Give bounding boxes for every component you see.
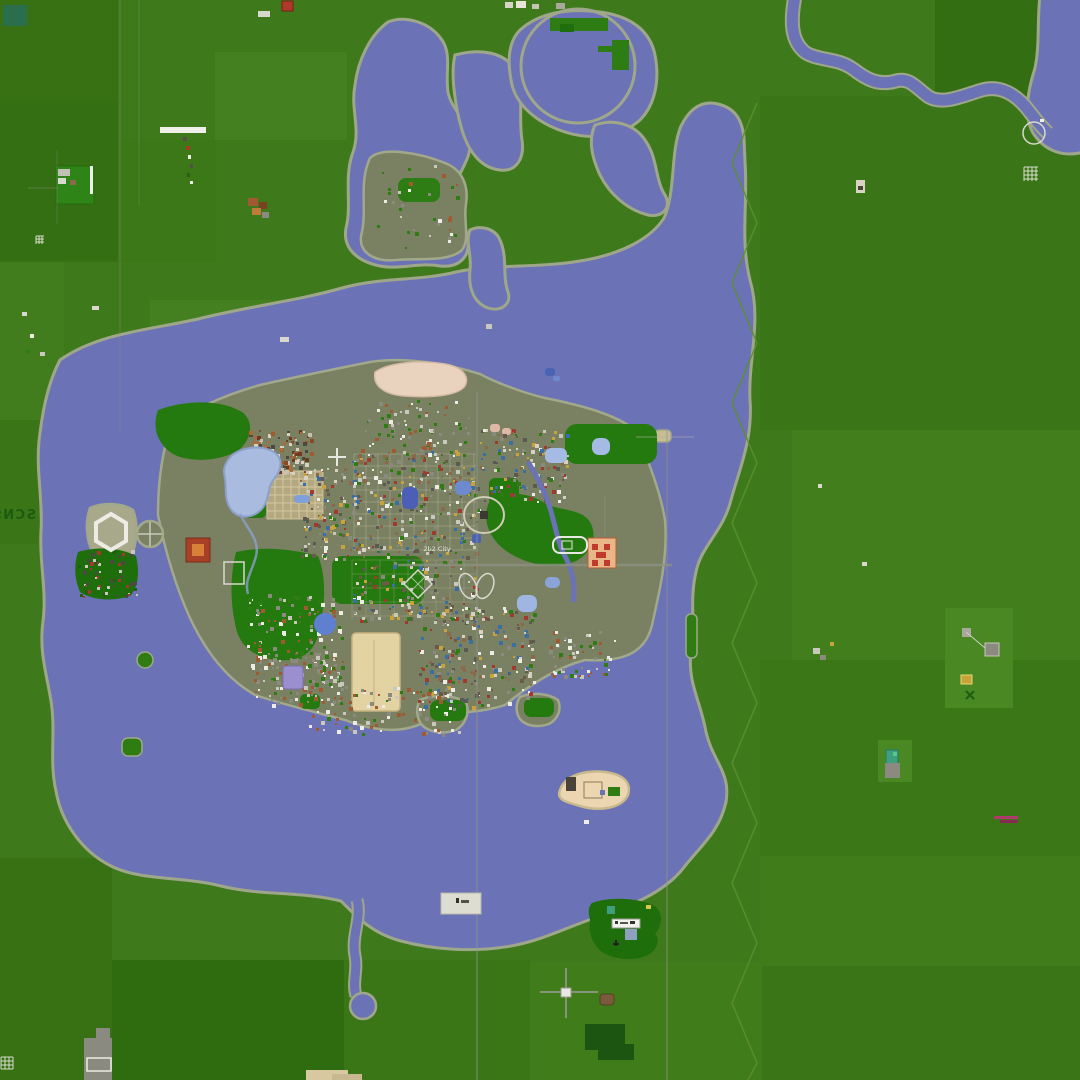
hamlet-e-speck [614,640,616,642]
city-south-speck [528,691,530,693]
city-east-speck [543,430,546,433]
city-core-speck [465,607,468,610]
city-west-speck [329,513,331,515]
hamlet-e-speck [553,671,555,673]
world-map-viewport[interactable]: SCNS2b2 City [0,0,1080,1080]
city-core-speck [354,539,357,542]
shore-south-speck [402,697,405,700]
city-south-speck [461,666,465,670]
platform-mark-2 [461,900,469,903]
shore-south-speck [370,692,373,695]
sand-isle-green [608,787,620,796]
shore-south-speck [321,721,325,725]
city-south-speck [452,618,455,621]
city-core-speck [473,546,476,549]
world-map-canvas: SCNS2b2 City [0,0,1080,1080]
district-s-speck [280,697,282,699]
pond-circle [314,613,336,635]
city-south-speck [425,678,429,682]
district-sw-speck [294,621,297,624]
city-north-edge-speck [408,436,411,439]
city-east-speck [552,437,555,440]
city-south-speck [459,644,462,647]
district-sw-speck [338,629,342,633]
islet-w-specks-speck [90,562,94,566]
district-s-speck [315,695,317,697]
city-south-speck [447,624,449,626]
city-west-speck [332,504,335,507]
city-north-edge-speck [403,444,406,447]
district-sw-speck [298,640,300,642]
district-sw-speck [332,610,336,614]
hamlet-e-speck [558,671,561,674]
city-west-speck [321,469,323,471]
city-south-speck [462,635,465,638]
city-core-speck [434,589,437,592]
district-s-speck [325,680,329,684]
city-core-speck [441,507,445,511]
poi-white-mid-e2 [862,562,867,566]
city-south-speck [482,618,485,621]
islet-w-specks-speck [83,571,87,575]
city-core-speck [389,546,392,549]
city-north-edge-speck [384,424,388,428]
district-sw-speck [282,613,286,617]
islet-w-specks-speck [95,572,98,575]
city-core-speck [431,515,435,519]
city-north-edge-speck [433,444,436,447]
city-core-speck [353,485,356,488]
city-south-speck [490,674,494,678]
district-s-speck [323,666,326,669]
sand-isle-blue [600,790,605,795]
city-north-edge-speck [420,425,423,428]
city-core-speck [401,467,404,470]
forest-lake-isle [398,178,440,202]
district-s-speck [274,692,277,695]
islet-w-specks-speck [107,586,110,589]
farm-white-bar [90,166,93,194]
city-core-speck [423,503,426,506]
district-s-speck [340,682,344,686]
city-north-edge-speck [458,423,461,426]
city-north-edge-speck [467,432,470,435]
city-core-speck [443,536,446,539]
city-core-speck [438,465,441,468]
city-east-speck [500,486,503,489]
shore-south-speck [317,711,319,713]
city-west-speck [349,517,351,519]
city-west-speck [322,538,324,540]
shore-south-speck [419,708,422,711]
village-nw-speck [268,441,270,443]
city-south-speck [431,663,434,666]
city-north-edge-speck [400,411,402,413]
city-core-speck [427,474,429,476]
city-north-edge-speck [414,430,417,433]
hamlet-e-speck [608,669,610,671]
islet-w-specks-speck [97,587,100,590]
village-nw-speck [292,472,295,475]
pond-core-2 [455,481,471,495]
district-s-speck [271,662,274,665]
city-west-speck [348,536,352,540]
city-south-speck [482,613,484,615]
city-core-speck [424,497,428,501]
city-core-speck [402,588,406,592]
city-core-speck [369,600,372,603]
temple-mark-4 [592,560,598,566]
city-core-speck [363,479,367,483]
city-core-speck [354,482,357,485]
city-west-speck [327,500,329,502]
city-core-speck [389,487,392,490]
city-core-speck [390,503,393,506]
city-core-speck [375,544,379,548]
city-east-speck [495,486,498,489]
city-east-speck [520,467,523,470]
city-core-speck [392,606,394,608]
village-nw-speck [283,471,287,475]
city-core-speck [374,476,378,480]
city-core-speck [409,483,412,486]
city-north-edge-speck [376,438,379,441]
city-south-speck [470,617,473,620]
shore-south-speck [366,721,370,725]
city-east-speck [516,448,518,450]
shore-south-speck [314,697,318,701]
village-nw-speck [310,452,314,456]
city-south-speck [468,608,470,610]
hamlet-e-speck [572,652,575,655]
shore-south-speck [361,689,364,692]
poi-l-3 [40,352,45,356]
lake-isle-marks-speck [413,229,415,231]
city-core-speck [393,522,397,526]
city-core-speck [453,480,455,482]
city-east-speck [547,467,550,470]
city-core-speck [374,494,377,497]
city-core-speck [421,532,423,534]
pond-s-2 [545,577,560,588]
district-sw-speck [283,599,286,602]
city-core-speck [363,476,366,479]
district-sw-speck [259,645,261,647]
city-west-speck [304,548,308,552]
city-south-speck [456,649,460,653]
city-south-speck [458,677,461,680]
city-west-speck [323,506,326,509]
lake-isle-marks-speck [405,247,407,249]
city-core-speck [454,528,457,531]
city-core-speck [399,599,402,602]
chunk-light-mr [945,608,1013,708]
city-core-speck [359,517,362,520]
city-east-speck [510,493,514,497]
city-east-speck [481,458,483,460]
city-east-speck [517,482,521,486]
district-s-speck [303,662,306,665]
hamlet-e-speck [573,656,576,659]
shore-south-speck [335,723,337,725]
white-bit-top-1 [505,2,513,8]
shore-south-speck [422,694,425,697]
city-north-edge-speck [437,411,439,413]
city-south-speck [465,689,467,691]
district-sw-speck [273,647,277,651]
city-south-speck [471,612,475,616]
village-nw-speck [293,456,296,459]
city-core-speck [425,453,427,455]
village-nw-speck [259,444,262,447]
shore-south-speck [367,705,370,708]
city-core-speck [367,458,371,462]
district-s-speck [334,664,337,667]
city-core-speck [370,538,372,540]
city-core-speck [407,603,410,606]
district-sw-speck [249,607,252,610]
city-core-speck [417,480,421,484]
district-sw-speck [279,598,282,601]
district-s-speck [318,653,321,656]
city-south-speck [474,680,476,682]
city-west-speck [324,550,327,553]
city-core-speck [362,586,364,588]
village-nw-speck [302,457,305,460]
brown-tl-4 [262,212,269,218]
city-east-speck [540,449,544,453]
village-nw-speck [305,450,308,453]
city-core-speck [453,455,455,457]
city-north-edge-speck [405,410,409,414]
city-south-speck [531,648,534,651]
hamlet-e-speck [556,644,559,647]
village-nw-speck [300,450,302,452]
sand-isle-dark [566,777,576,791]
village-nw-speck [287,433,290,436]
city-east-speck [503,449,506,452]
city-east-speck [553,466,556,469]
district-s-speck [325,655,329,659]
poi-water-glider [280,337,289,342]
shore-south-speck [429,689,432,692]
district-sw-speck [271,678,273,680]
city-south-speck [512,688,515,691]
city-south-speck [507,646,511,650]
district-s-speck [314,663,318,667]
city-south-speck [451,654,454,657]
city-south-speck [494,674,497,677]
hamlet-e-speck [553,675,556,678]
temple-mark-5 [604,560,610,566]
city-north-edge-speck [445,406,448,409]
city-core-speck [408,560,410,562]
city-core-speck [387,574,389,576]
city-west-speck [314,469,316,471]
city-south-speck [528,645,530,647]
chunk-e2 [792,430,1080,660]
glider-trail-6 [190,181,193,184]
city-east-speck [491,491,493,493]
city-core-speck [463,540,466,543]
district-s-speck [332,667,335,670]
village-nw-speck [286,440,288,442]
district-sw-speck [328,671,331,674]
city-south-speck [526,696,530,700]
city-south-speck [479,657,482,660]
city-east-speck [532,493,535,496]
city-core-speck [356,582,359,585]
city-core-speck [406,554,409,557]
city-core-speck [463,454,466,457]
district-sw-speck [298,621,301,624]
city-core-speck [434,453,437,456]
city-core-speck [397,460,401,464]
shore-south-speck [364,690,366,692]
city-south-speck [521,642,524,645]
city-south-speck [480,635,483,638]
city-core-speck [359,460,363,464]
city-west-speck [343,558,346,561]
sign-tl [258,11,270,17]
city-south-speck [433,651,436,654]
city-south-speck [490,651,494,655]
city-south-speck [445,606,448,609]
district-sw-speck [332,598,335,601]
hamlet-e-speck [579,675,581,677]
city-west-speck [323,533,326,536]
magenta-strip-1 [994,816,1018,819]
city-south-speck [422,668,425,671]
chunk-nw3 [120,140,216,262]
city-north-edge-speck [365,430,367,432]
district-s-speck [283,697,286,700]
shore-south-speck [373,719,376,722]
city-south-speck [470,671,473,674]
poi-e-2 [820,655,826,660]
district-s-speck [325,651,328,654]
city-east-speck [518,474,520,476]
city-core-speck [383,495,386,498]
islet-w-specks-speck [85,585,87,587]
city-core-speck [454,513,457,516]
islet-w-specks-speck [131,550,135,554]
district-s-speck [269,695,271,697]
city-core-speck [463,467,465,469]
shore-south-speck [327,698,330,701]
city-south-speck [524,632,526,634]
city-west-speck [347,555,349,557]
city-core-speck [449,472,452,475]
city-core-speck [372,546,374,548]
district-s-speck [295,698,298,701]
city-core-speck [471,468,474,471]
district-s-speck [341,666,345,670]
city-core-speck [354,594,356,596]
city-north-edge-speck [394,413,397,416]
city-core-speck [357,507,359,509]
city-north-edge-speck [427,442,431,446]
city-south-speck [449,657,452,660]
hamlet-e-speck [587,670,590,673]
city-core-speck [403,451,406,454]
platform-sign [441,893,481,914]
city-north-edge-speck [416,407,418,409]
city-south-speck [444,692,447,695]
lake-isle-marks-speck [429,235,431,237]
city-south-speck [420,606,423,609]
city-core-speck [435,461,437,463]
shore-south-speck [400,691,403,694]
city-core-speck [411,558,414,561]
base-mr-sq1 [985,643,999,656]
city-core-speck [385,461,388,464]
city-core-speck [444,490,446,492]
shore-south-speck [360,726,364,730]
shore-south-speck [422,732,426,736]
city-core-speck [393,565,397,569]
city-west-speck [340,497,343,500]
city-east-speck [507,477,510,480]
city-core-speck [456,462,460,466]
city-south-speck [512,666,516,670]
district-s-speck [341,697,343,699]
city-core-speck [430,472,434,476]
lake-isle-marks-speck [433,218,436,221]
city-south-speck [513,656,515,658]
channel-lake-sea [468,228,509,309]
city-core-speck [425,517,428,520]
hamlet-e-speck [588,675,590,677]
city-core-speck [450,451,453,454]
district-s-speck [315,653,318,656]
city-core-speck [380,471,382,473]
city-west-speck [306,520,309,523]
city-west-speck [353,491,356,494]
district-sw-speck [258,648,262,652]
city-core-speck [394,481,397,484]
district-sw-speck [270,627,274,631]
city-west-speck [341,473,344,476]
lake-isle-marks-speck [401,204,404,207]
shore-south-speck [386,700,388,702]
shore-south-speck [349,707,353,711]
city-core-speck [354,497,357,500]
city-west-speck [343,479,345,481]
district-s-speck [277,702,280,705]
city-core-speck [357,473,359,475]
islet-w-specks-speck [105,592,108,595]
city-core-speck [410,521,413,524]
darkrect-s-2 [598,1044,634,1060]
city-south-speck [462,638,466,642]
city-south-speck [450,609,453,612]
district-sw-speck [338,626,341,629]
city-core-speck [431,611,433,613]
farm-cell-2 [58,178,66,184]
city-core-speck [394,562,397,565]
city-core-speck [369,582,372,585]
ring-green-3 [598,46,620,52]
farm-cell-1 [58,169,70,176]
city-east-speck [544,446,547,449]
district-s-speck [311,694,313,696]
district-s-speck [289,699,293,703]
city-core-speck [390,469,393,472]
city-core-speck [383,455,387,459]
city-south-speck [520,679,524,683]
district-s-speck [268,663,271,666]
